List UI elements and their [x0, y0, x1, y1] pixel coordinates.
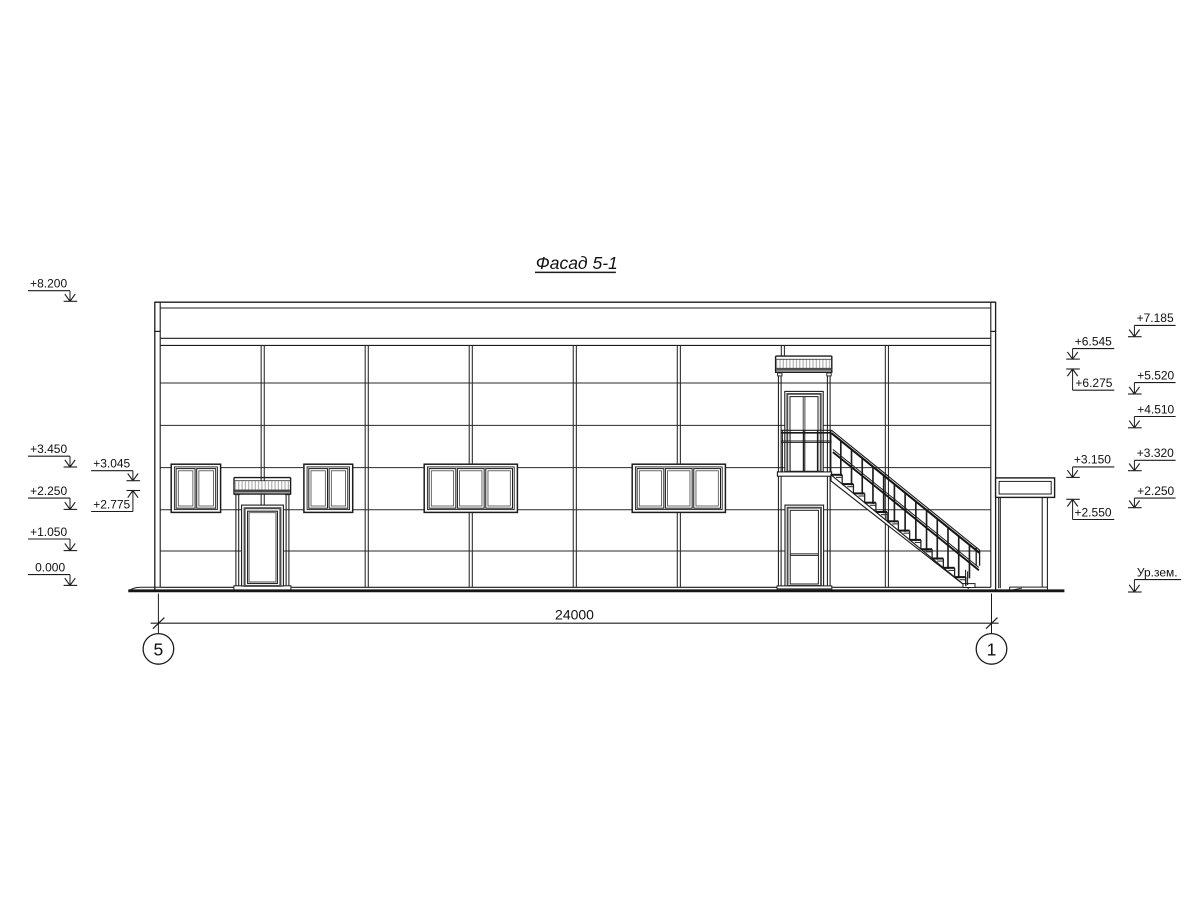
- svg-text:0.000: 0.000: [35, 560, 65, 574]
- svg-text:+5.520: +5.520: [1137, 368, 1174, 382]
- svg-text:Фасад 5-1: Фасад 5-1: [536, 253, 618, 273]
- svg-text:+6.545: +6.545: [1075, 334, 1112, 348]
- svg-text:+2.775: +2.775: [93, 497, 130, 511]
- svg-text:+2.250: +2.250: [1137, 484, 1174, 498]
- svg-text:Ур.зем.: Ур.зем.: [1137, 565, 1178, 579]
- svg-text:+3.045: +3.045: [93, 457, 130, 471]
- svg-text:1: 1: [987, 639, 997, 659]
- svg-text:5: 5: [154, 639, 164, 659]
- svg-text:+6.275: +6.275: [1075, 376, 1112, 390]
- svg-text:+7.185: +7.185: [1137, 311, 1174, 325]
- svg-text:+2.550: +2.550: [1075, 505, 1112, 519]
- svg-text:+8.200: +8.200: [30, 277, 67, 291]
- svg-text:+4.510: +4.510: [1137, 402, 1174, 416]
- svg-text:+3.150: +3.150: [1074, 453, 1111, 467]
- svg-text:+3.320: +3.320: [1137, 446, 1174, 460]
- svg-text:+3.450: +3.450: [30, 442, 67, 456]
- svg-text:+1.050: +1.050: [30, 525, 67, 539]
- svg-text:+2.250: +2.250: [30, 484, 67, 498]
- svg-text:24000: 24000: [555, 606, 594, 622]
